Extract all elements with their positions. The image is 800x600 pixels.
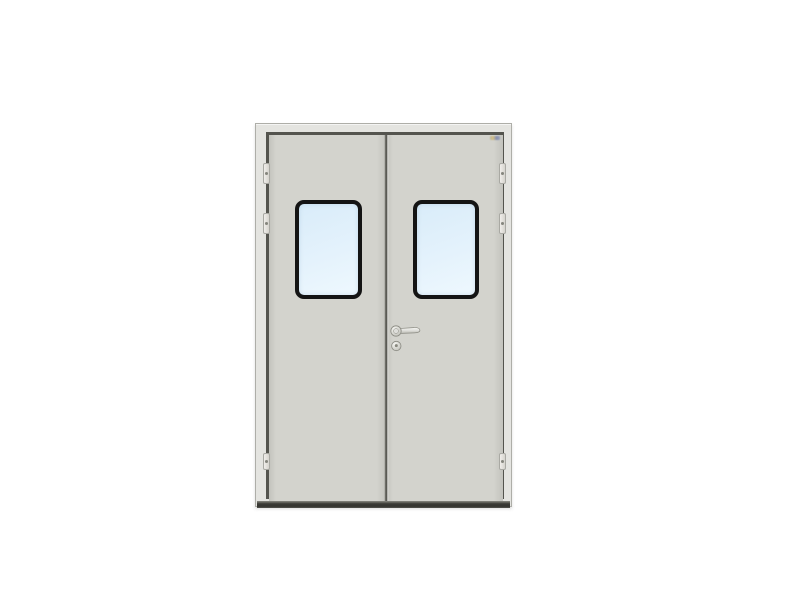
hinge-left-2 [263,213,270,234]
hinge-right-1 [499,163,506,184]
hinge-left-1 [263,163,270,184]
door-leaf-left [269,135,386,501]
double-door-assembly [255,123,512,507]
vision-window-left [295,200,362,299]
vision-window-right [413,200,479,299]
window-glass-right [417,204,475,295]
door-frame-rebate [266,132,504,499]
hinge-left-3 [263,453,270,470]
door-leaf-right [386,135,503,501]
brand-sticker [490,136,500,140]
lock-cylinder-icon [392,341,401,350]
product-photo-canvas [0,0,800,600]
hinge-right-2 [499,213,506,234]
window-glass-left [299,204,358,295]
center-seam [384,135,389,501]
door-handle [386,323,426,357]
hinge-right-3 [499,453,506,470]
threshold-bar [257,501,510,508]
lever-handle-icon [391,326,420,336]
